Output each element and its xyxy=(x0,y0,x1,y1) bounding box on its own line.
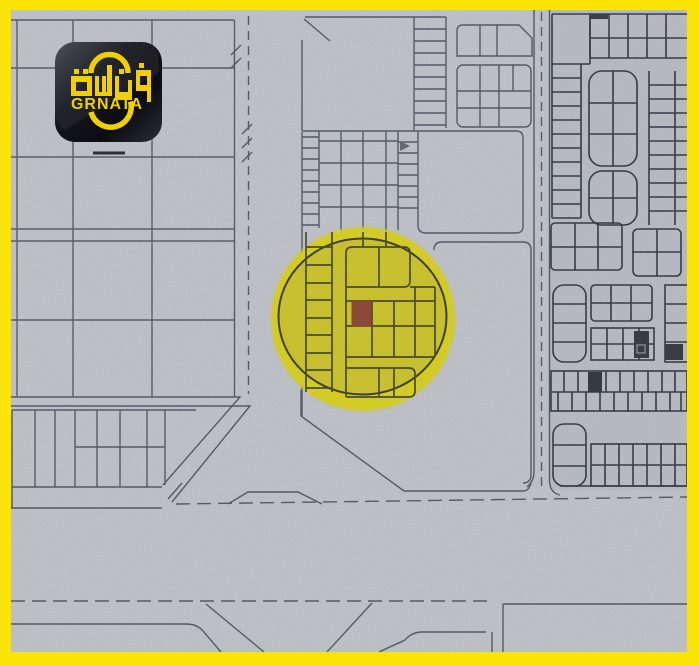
svg-text:GRNATA: GRNATA xyxy=(71,96,143,113)
